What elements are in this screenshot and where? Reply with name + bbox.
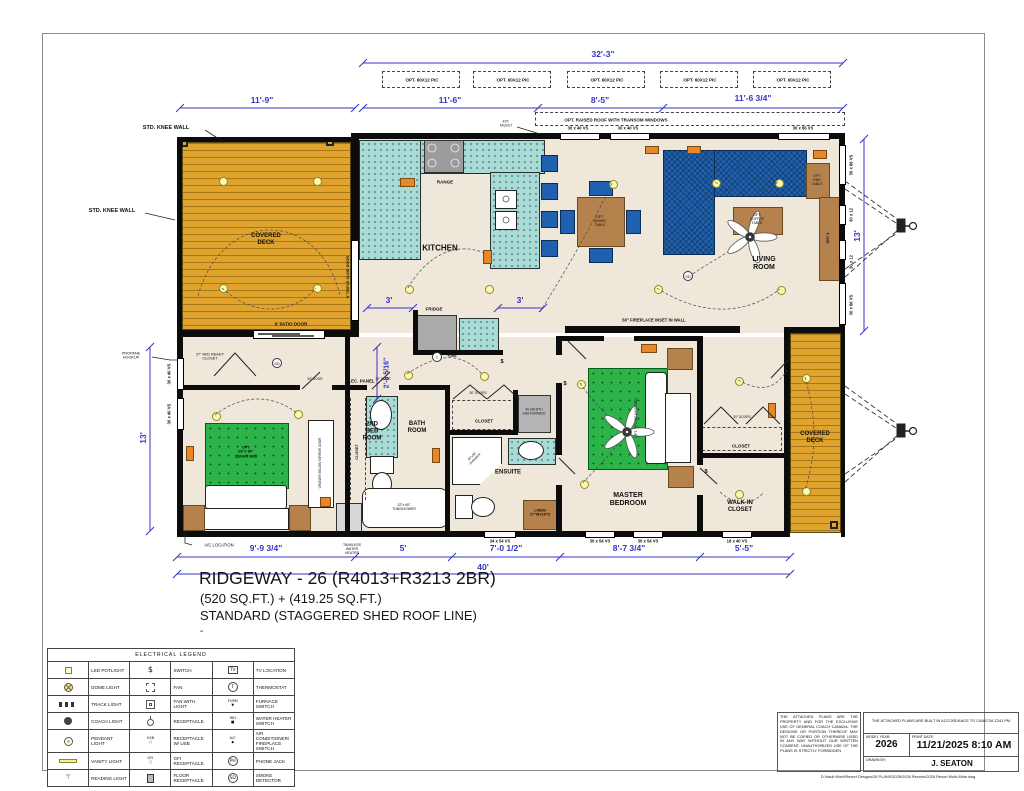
potlight [735, 490, 744, 499]
fan-with-light-icon [146, 700, 155, 709]
vanity-light-icon [59, 759, 77, 763]
dining-chair [589, 248, 613, 263]
linen-cabinet [523, 500, 559, 530]
smoke-detector-symbol: SD [272, 358, 282, 368]
potlight [735, 377, 744, 386]
wall [413, 310, 418, 355]
wall [177, 330, 253, 337]
dim-b1: 9'-9 3/4" [250, 543, 283, 553]
gas-furnace [518, 395, 551, 433]
legend-icon-cell [48, 679, 89, 696]
bath-sink [370, 400, 392, 430]
legend-title: ELECTRICAL LEGEND [48, 649, 295, 662]
legend-icon-cell: SD [212, 770, 253, 787]
wall [562, 336, 604, 341]
queen-bed-foot [205, 485, 287, 509]
track-light-icon [59, 702, 77, 707]
dining-chair [626, 210, 641, 234]
dining-chair [560, 210, 575, 234]
legend-icon-cell: WH ■ [212, 713, 253, 730]
option-pic-box: OPT. 60X12 PIC [660, 71, 738, 88]
potlight [480, 372, 489, 381]
dim-right-height: 13' [852, 230, 862, 241]
reading-light-icon: ⊤ [65, 775, 70, 781]
sink-basin [495, 211, 517, 230]
raised-roof-label: OPT. RAISED ROOF WITH TRANSOM WINDOWS [536, 117, 696, 122]
legend-label: GFI RECEPTACLE [171, 753, 212, 770]
wall-marker [641, 344, 657, 353]
bar-stool [541, 211, 558, 228]
legend-icon-cell: T [212, 679, 253, 696]
dim-b5: 5'-5" [735, 543, 753, 553]
potlight [654, 285, 663, 294]
potlight [294, 410, 303, 419]
ensuite-sink [518, 441, 544, 460]
legend-icon-cell: ⊤ [48, 770, 89, 787]
wall [700, 453, 784, 458]
legend-label: LED POTLIGHT [89, 662, 130, 679]
potlight [313, 284, 322, 293]
potlight [712, 179, 721, 188]
wall [556, 485, 562, 537]
wall [634, 336, 700, 341]
deck-post [830, 521, 838, 529]
dome-light-icon [64, 683, 73, 692]
wall-marker [320, 497, 331, 507]
deck-wall [841, 333, 845, 537]
floor-receptacle-icon [147, 774, 154, 783]
legend-icon-cell [48, 713, 89, 730]
option-pic-label: OPT. 60X12 PIC [662, 77, 738, 82]
coach-light-icon [64, 717, 72, 725]
potlight [609, 180, 618, 189]
window [633, 531, 663, 538]
wall [513, 390, 518, 434]
entertainment-unit [819, 197, 840, 281]
window [177, 358, 184, 390]
bar-stool [541, 183, 558, 200]
dim-top-overall: 32'-3" [591, 49, 614, 59]
smoke-detector-symbol: SD [683, 271, 693, 281]
wall [445, 390, 450, 537]
wall [413, 350, 503, 355]
option-pic-box: OPT. 60X12 PIC [753, 71, 831, 88]
potlight [802, 487, 811, 496]
potlight [580, 480, 589, 489]
bed2-storage-bench [203, 508, 289, 530]
plan-title: RIDGEWAY - 26 (R4013+R3213 2BR) [199, 568, 496, 589]
legend-label: COACH LIGHT [89, 713, 130, 730]
window [839, 205, 846, 225]
legend-label: FAN WITH LIGHT [171, 696, 212, 713]
sectional-sofa-chaise [663, 150, 715, 255]
wall-marker [645, 146, 659, 154]
gfi-receptacle-icon: GFI ○ [147, 757, 153, 764]
bar-stool [541, 240, 558, 257]
file-path: D:\Vault Work\Resort Designs\26 PLANS\20… [777, 774, 1019, 779]
deck-wall [177, 137, 182, 330]
smoke-detector-icon: SD [228, 773, 238, 783]
patio-door [253, 330, 325, 339]
dim-k3b: 3' [517, 295, 524, 305]
drawn-by-label: DRAWN BY: [864, 757, 886, 762]
drawn-by-value: J. SEATON [864, 757, 1018, 768]
bed2-closet-strip [350, 398, 366, 500]
ac-fireplace-switch-icon: A/C ◆ [230, 737, 236, 744]
thermostat-icon: T [228, 682, 238, 692]
fireplace-wall [565, 326, 740, 333]
dim-b2: 5' [400, 543, 407, 553]
master-closet-shelf [702, 427, 782, 451]
print-date-value: 11/21/2025 8:10 AM [910, 739, 1018, 751]
led-potlight-icon [65, 667, 72, 674]
legend-row: LED POTLIGHT$SWITCHTVTV LOCATION [48, 662, 295, 679]
option-pic-box: OPT. 60X12 PIC [473, 71, 551, 88]
king-bed-pillows [645, 372, 667, 464]
wall-marker [186, 446, 194, 461]
window [839, 145, 846, 185]
sink-basin [495, 190, 517, 209]
potlight [313, 177, 322, 186]
option-pic-label: OPT. 60X12 PIC [384, 77, 460, 82]
legend-label: TV LOCATION [253, 662, 294, 679]
wall [556, 383, 562, 455]
option-pic-box: OPT. 60X12 PIC [382, 71, 460, 88]
legend-row: TRACK LIGHTFAN WITH LIGHTFURN ▼FURNACE S… [48, 696, 295, 713]
tub-shower [362, 488, 448, 528]
bar-stool [541, 155, 558, 172]
wall-marker [400, 178, 415, 187]
legend-row: PENDANT LIGHTUSB ○RECEPTACLE W/ USBA/C ◆… [48, 730, 295, 753]
legend-icon-cell: $ [130, 662, 171, 679]
legend-label: PHONE JACK [253, 753, 294, 770]
potlight [405, 285, 414, 294]
fridge [417, 315, 457, 353]
phone-jack-icon: PH [228, 756, 238, 766]
dim-seg-a: 11'-6" [439, 95, 462, 105]
dining-table [577, 197, 625, 247]
legend-icon-cell [130, 713, 171, 730]
wall [332, 385, 345, 390]
thermostat-symbol: T [432, 352, 442, 362]
legend-label: RECEPTACLE W/ USB [171, 730, 212, 753]
legend-label: RECEPTACLE [171, 713, 212, 730]
kitchen-counter-left [359, 140, 421, 260]
potlight [802, 374, 811, 383]
legend-icon-cell: USB ○ [130, 730, 171, 753]
wall-marker [768, 403, 776, 418]
option-pic-box: OPT. 60X12 PIC [567, 71, 645, 88]
legend-icon-cell: FURN ▼ [212, 696, 253, 713]
wall [325, 330, 359, 337]
potlight [219, 284, 228, 293]
plan-dash: - [200, 626, 203, 637]
legend-table: ELECTRICAL LEGEND LED POTLIGHT$SWITCHTVT… [47, 648, 295, 787]
legend-label: SMOKE DETECTOR [253, 770, 294, 787]
wall [450, 430, 518, 435]
potlight [485, 285, 494, 294]
legend-row: COACH LIGHTRECEPTACLEWH ■WATER HEATER SW… [48, 713, 295, 730]
drawing-sheet: OPT. 60X12 PIC OPT. 60X12 PIC OPT. 60X12… [0, 0, 1024, 791]
tv-location-icon: TV [228, 666, 238, 674]
window [778, 133, 830, 140]
plan-roof-note: STANDARD (STAGGERED SHED ROOF LINE) [200, 608, 477, 623]
wall [784, 327, 845, 333]
potlight [212, 412, 221, 421]
receptacle-usb-icon: USB ○ [147, 737, 154, 744]
covered-deck-left [182, 142, 351, 330]
dim-left-height: 13' [138, 432, 148, 443]
legend-label: TRACK LIGHT [89, 696, 130, 713]
legend-icon-cell [48, 730, 89, 753]
wall [351, 133, 359, 240]
wall [355, 133, 845, 139]
furnace-switch-icon: FURN ▼ [228, 700, 238, 707]
dim-hall: 2'-8 5/16" [384, 358, 391, 389]
wall [345, 333, 350, 537]
wall [784, 333, 790, 537]
legend-label: SWITCH [171, 662, 212, 679]
legend-label: FURNACE SWITCH [253, 696, 294, 713]
wall [180, 385, 300, 390]
triple-slide-door [351, 240, 359, 321]
wall-marker [813, 150, 827, 159]
dim-deck-width: 11'-9" [251, 95, 274, 105]
window [585, 531, 615, 538]
window [610, 133, 650, 140]
fan-icon [146, 683, 155, 692]
wall [697, 495, 703, 537]
nightstand [183, 505, 205, 531]
wall-marker [687, 146, 701, 154]
potlight [219, 177, 228, 186]
potlight [777, 286, 786, 295]
option-pic-label: OPT. 60X12 PIC [755, 77, 831, 82]
window [722, 531, 752, 538]
legend-label: DOME LIGHT [89, 679, 130, 696]
queen-bed [205, 423, 289, 489]
window [560, 133, 600, 140]
legend-row: VANITY LIGHTGFI ○GFI RECEPTACLEPHPHONE J… [48, 753, 295, 770]
dim-b3: 7'-0 1/2" [490, 543, 523, 553]
option-pic-label: OPT. 60X12 PIC [475, 77, 551, 82]
water-heater-switch-icon: WH ■ [230, 717, 236, 724]
wall-marker [432, 448, 440, 463]
coffee-table [733, 207, 783, 235]
legend-label: THERMOSTAT [253, 679, 294, 696]
window [839, 283, 846, 325]
legend-icon-cell: GFI ○ [130, 753, 171, 770]
end-table [806, 163, 830, 199]
switch-icon: $ [148, 666, 153, 674]
compliance-note: THE ATTACHED PLANS ARE BUILT IN ACCORDAN… [864, 713, 1018, 734]
legend-icon-cell: A/C ◆ [212, 730, 253, 753]
legend-label: READING LIGHT [89, 770, 130, 787]
legend-label: AIR CONDITIONER/ FIREPLACE SWITCH [253, 730, 294, 753]
wall [345, 385, 367, 390]
title-block-right: THE ATTACHED PLANS ARE BUILT IN ACCORDAN… [863, 712, 1019, 772]
dim-seg-b: 8'-5" [591, 95, 609, 105]
legend-icon-cell: PH [212, 753, 253, 770]
covered-deck-right [790, 333, 841, 533]
range [424, 140, 464, 173]
master-shelving [665, 393, 691, 463]
dim-b4: 8'-7 3/4" [613, 543, 646, 553]
legend-icon-cell [130, 696, 171, 713]
mirror-wardrobe [308, 420, 334, 508]
legend-row: DOME LIGHTFANTTHERMOSTAT [48, 679, 295, 696]
wall [697, 336, 703, 398]
window [484, 531, 516, 538]
legend-icon-cell [130, 770, 171, 787]
hall-closet-shelf [452, 400, 516, 430]
ensuite-toilet-bowl [471, 497, 495, 517]
option-pic-label: OPT. 60X12 PIC [569, 77, 645, 82]
copyright-note: THE ATTACHED PLANS ARE THE PROPERTY AND … [777, 712, 861, 772]
dim-seg-c: 11'-6 3/4" [735, 93, 772, 103]
potlight [577, 380, 586, 389]
legend-label: VANITY LIGHT [89, 753, 130, 770]
potlight [404, 371, 413, 380]
receptacle-icon [147, 719, 154, 726]
wall [399, 385, 450, 390]
legend-icon-cell: TV [212, 662, 253, 679]
window [839, 240, 846, 260]
window [177, 398, 184, 430]
nightstand [289, 505, 311, 531]
legend-icon-cell [48, 696, 89, 713]
master-nightstand [668, 466, 694, 488]
legend-icon-cell [48, 662, 89, 679]
legend-label: WATER HEATER SWITCH [253, 713, 294, 730]
legend-row: ⊤READING LIGHTFLOOR RECEPTACLESDSMOKE DE… [48, 770, 295, 787]
potlight [775, 179, 784, 188]
deck-wall [177, 137, 355, 142]
master-nightstand [667, 348, 693, 370]
legend-icon-cell [130, 679, 171, 696]
legend-label: PENDANT LIGHT [89, 730, 130, 753]
pendant-light-icon [64, 737, 73, 746]
wall-marker [483, 250, 492, 264]
legend-label: FLOOR RECEPTACLE [171, 770, 212, 787]
raised-roof-box: OPT. RAISED ROOF WITH TRANSOM WINDOWS [535, 112, 845, 126]
model-year-value: 2026 [864, 739, 909, 750]
legend-icon-cell [48, 753, 89, 770]
plan-area: (520 SQ.FT.) + (419.25 SQ.FT.) [200, 591, 382, 606]
legend-label: FAN [171, 679, 212, 696]
dim-k3a: 3' [386, 295, 393, 305]
